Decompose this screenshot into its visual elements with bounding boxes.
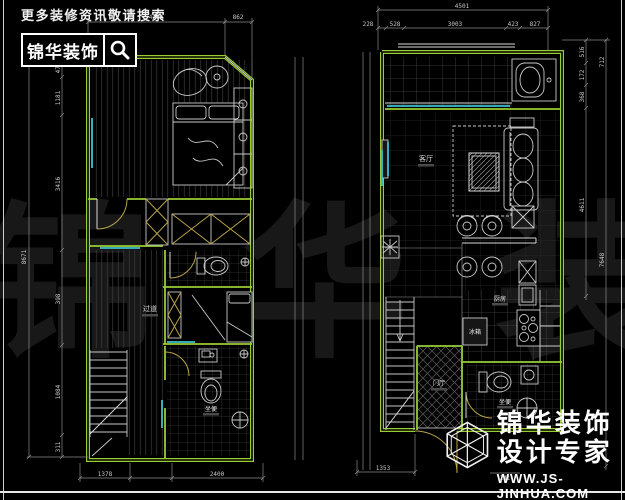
- svg-text:3416: 3416: [55, 176, 62, 191]
- tall-wardrobe: [146, 199, 168, 245]
- svg-text:368: 368: [579, 91, 586, 102]
- svg-text:398: 398: [55, 293, 62, 304]
- cube-logo-icon: [444, 414, 491, 476]
- svg-text:827: 827: [530, 21, 541, 28]
- footer-url: WWW.JS-JINHUA.COM: [497, 471, 625, 500]
- corridor-wood-floor: [92, 250, 163, 348]
- footer-tagline: 设计专家: [497, 439, 625, 468]
- svg-text:8671: 8671: [21, 249, 28, 264]
- left-staircase: [90, 350, 127, 456]
- hall-wood-floor: [127, 348, 163, 455]
- balcony-tiles: [385, 57, 512, 107]
- svg-text:172: 172: [579, 69, 586, 80]
- kitchen-label: 厨房: [494, 295, 506, 303]
- bath-label: 坐便: [499, 398, 511, 406]
- svg-text:862: 862: [233, 14, 244, 21]
- svg-text:冰箱: 冰箱: [469, 328, 481, 336]
- left-plan: 过道 坐便 4284 862 8671 475 1181 3416 398 10…: [21, 14, 303, 482]
- wide-wardrobe: [172, 214, 250, 244]
- stove: [517, 310, 540, 346]
- small-bedroom: [168, 292, 252, 342]
- svg-text:3003: 3003: [448, 21, 463, 28]
- svg-text:4611: 4611: [579, 197, 586, 212]
- cad-canvas: 锦 华 装 饰: [0, 0, 625, 500]
- search-hint-text: 更多装修资讯敬请搜索: [21, 5, 166, 25]
- svg-text:4501: 4501: [455, 3, 470, 10]
- corridor-label: 过道: [143, 304, 157, 313]
- right-staircase: [386, 297, 414, 430]
- svg-text:7648: 7648: [599, 252, 606, 267]
- brand-logo-box: 锦华装饰: [21, 33, 137, 67]
- svg-text:516: 516: [579, 46, 586, 57]
- living-floor-grid: [385, 112, 562, 297]
- upper-bath-tiles: [167, 250, 252, 287]
- entry-label: 门厅: [433, 379, 445, 387]
- frame-left-edge: [3, 0, 4, 500]
- balcony-basin: [512, 59, 556, 101]
- coffee-table: [469, 153, 499, 191]
- svg-text:311: 311: [55, 441, 62, 452]
- svg-text:1181: 1181: [55, 90, 62, 105]
- balcony-window: [398, 44, 515, 47]
- footer-logo: 锦华装饰 设计专家 WWW.JS-JINHUA.COM: [444, 410, 625, 500]
- fridge: 冰箱: [463, 318, 487, 345]
- svg-text:1378: 1378: [98, 471, 113, 478]
- svg-text:2400: 2400: [210, 471, 225, 478]
- brand-logo-text: 锦华装饰: [23, 35, 105, 65]
- bedroom-door: [97, 199, 127, 229]
- living-label: 客厅: [419, 154, 433, 163]
- magnifier-icon: [105, 35, 135, 65]
- double-bed: [173, 103, 243, 185]
- svg-text:228: 228: [363, 21, 374, 28]
- svg-text:712: 712: [599, 56, 606, 67]
- footer-brand-name: 锦华装饰: [497, 410, 625, 439]
- svg-text:1084: 1084: [55, 384, 62, 399]
- svg-text:423: 423: [508, 21, 519, 28]
- svg-text:1353: 1353: [376, 465, 391, 472]
- svg-text:528: 528: [390, 21, 401, 28]
- bathroom-label: 坐便: [205, 405, 217, 413]
